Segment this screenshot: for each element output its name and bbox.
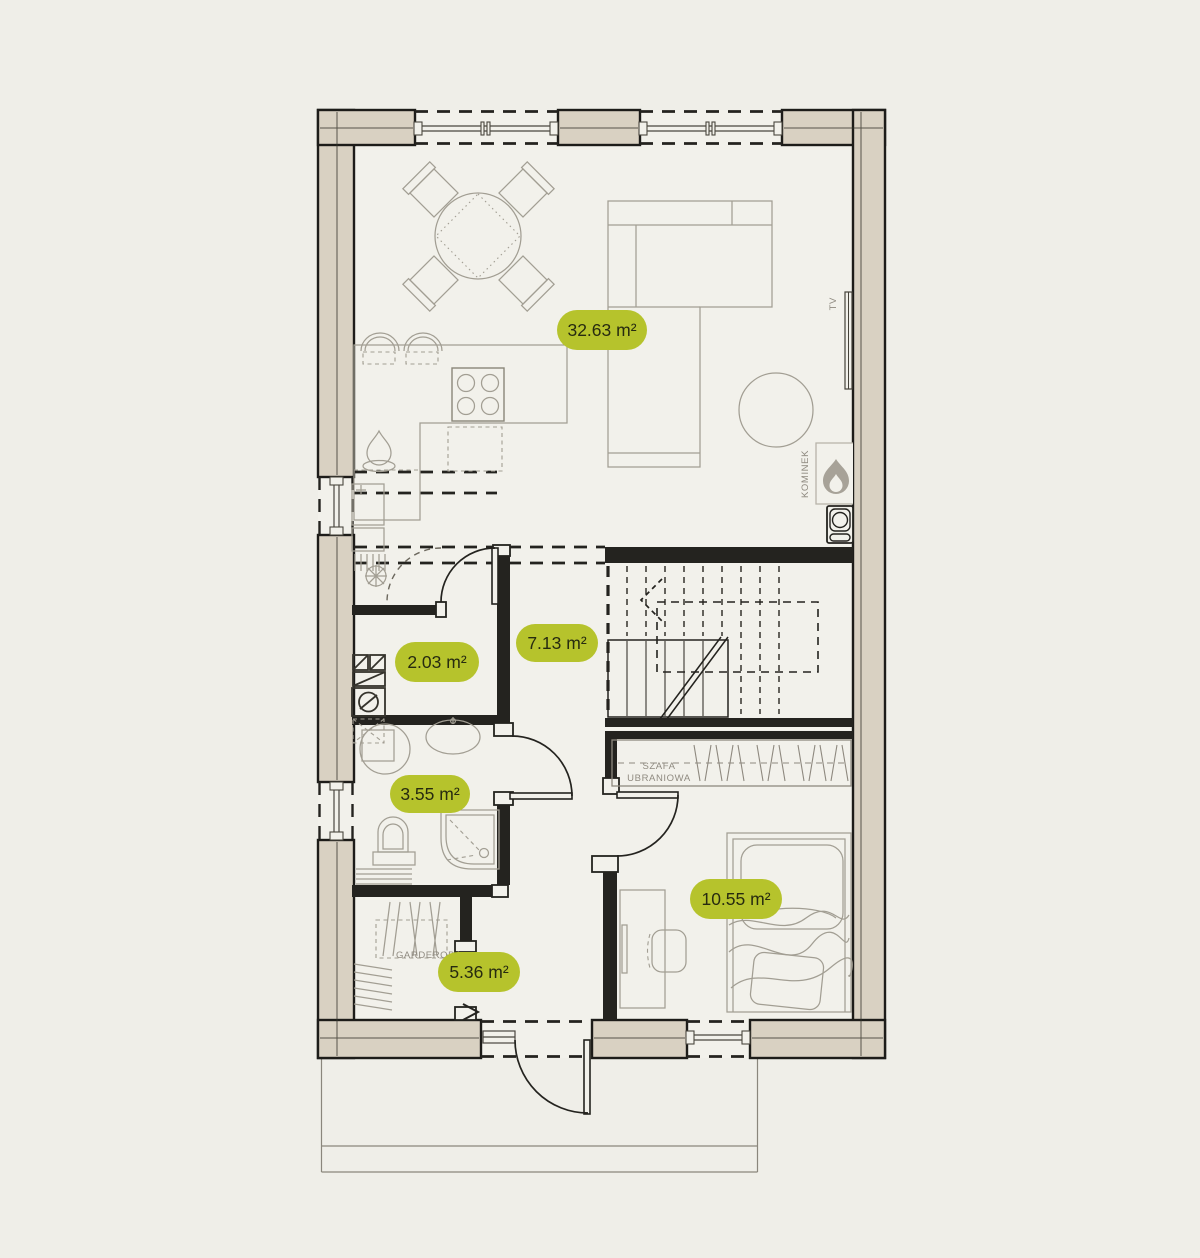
stove-unit [827, 506, 853, 543]
area-label-bedroom: 10.55 m² [690, 879, 782, 919]
area-value-bedroom: 10.55 m² [701, 889, 770, 909]
floor-plan: TV KOMINEK [0, 0, 1200, 1258]
area-value-garderobe: 5.36 m² [449, 962, 508, 982]
closet-label-line1: SZAFA [642, 761, 675, 772]
floor-plan-page: TV KOMINEK [0, 0, 1200, 1258]
area-label-bathroom: 3.55 m² [390, 775, 470, 813]
tv-label: TV [828, 297, 839, 310]
area-label-living: 32.63 m² [557, 310, 647, 350]
porch-outline [322, 1058, 758, 1172]
floor-area [318, 110, 885, 1058]
area-value-hall: 7.13 m² [527, 633, 586, 653]
closet-label-line2: UBRANIOWA [627, 773, 691, 784]
fireplace-label: KOMINEK [800, 450, 811, 498]
fireplace-icon [816, 443, 853, 504]
area-label-garderobe: 5.36 m² [438, 952, 520, 992]
area-label-hall: 7.13 m² [516, 624, 598, 662]
area-value-bathroom: 3.55 m² [400, 784, 459, 804]
area-value-living: 32.63 m² [567, 320, 636, 340]
area-value-laundry: 2.03 m² [407, 652, 466, 672]
vent-icon [365, 565, 387, 587]
area-label-laundry: 2.03 m² [395, 642, 479, 682]
